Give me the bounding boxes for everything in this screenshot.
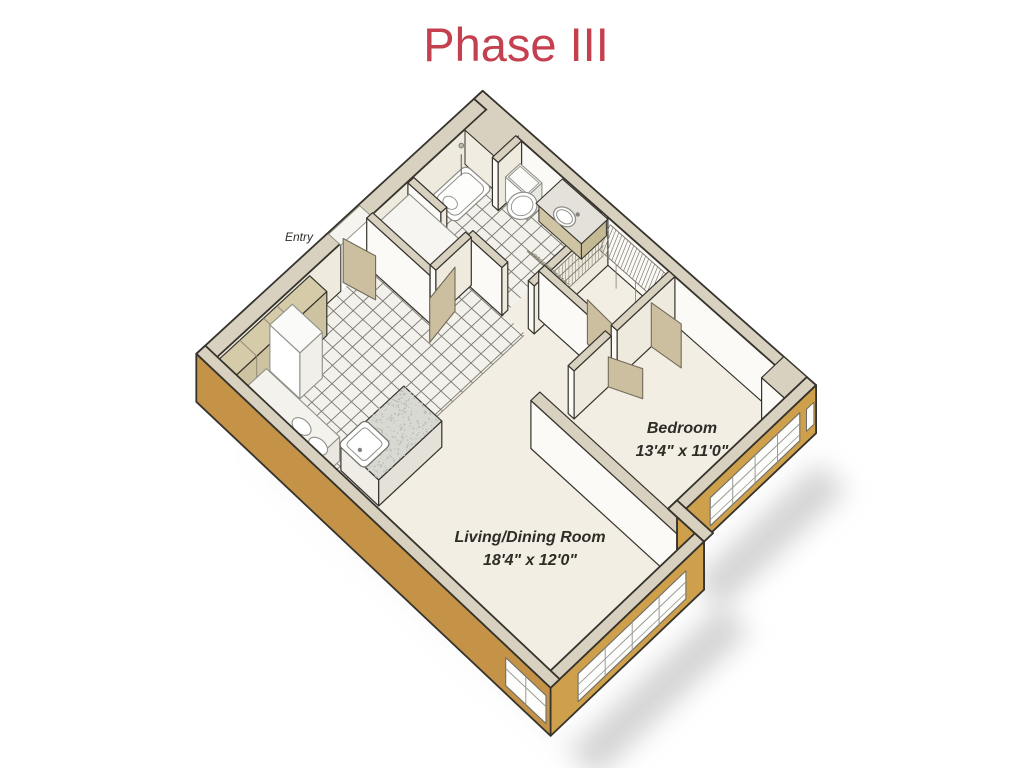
svg-text:Bedroom: Bedroom — [647, 420, 717, 437]
svg-text:Living/Dining Room: Living/Dining Room — [454, 529, 605, 546]
svg-text:Entry: Entry — [285, 230, 314, 244]
svg-text:Phase III: Phase III — [423, 18, 609, 71]
svg-text:18'4" x 12'0": 18'4" x 12'0" — [483, 552, 577, 569]
svg-text:13'4" x 11'0": 13'4" x 11'0" — [636, 443, 729, 460]
